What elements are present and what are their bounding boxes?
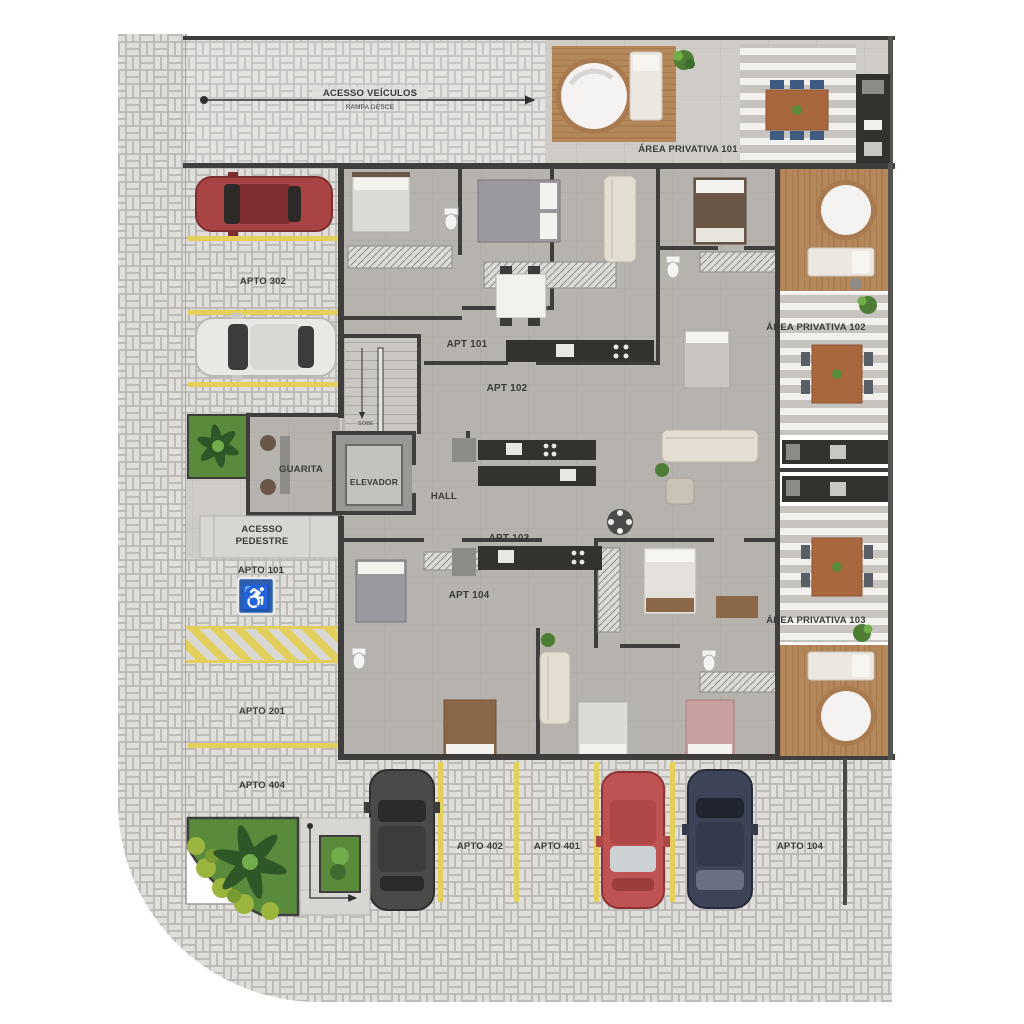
ramp-label: ACESSO VEÍCULOS <box>323 88 417 99</box>
handicap-sign: ♿ <box>238 578 274 614</box>
bed <box>352 172 410 232</box>
bbq-counter-102 <box>782 440 888 464</box>
bed <box>478 180 560 242</box>
side-table <box>850 278 862 290</box>
sofa <box>540 652 570 724</box>
apt-104-label: APT 104 <box>449 590 490 601</box>
ramp-sublabel: RAMPA DESCE <box>346 104 395 111</box>
bbq-counter-103 <box>782 476 888 502</box>
bed <box>694 178 746 244</box>
lounger-102 <box>808 248 874 276</box>
bed <box>444 700 496 756</box>
stairs-up-label: SOBE <box>358 421 374 427</box>
car-white <box>196 313 336 381</box>
pedestrian-access-label-1: ACESSO <box>241 524 282 535</box>
parking-bottom: APTO 402 APTO 401 APTO 104 <box>342 758 892 910</box>
parking-spot-104-label: APTO 104 <box>777 841 824 852</box>
apt-102-label: APT 102 <box>487 383 528 394</box>
sofa <box>604 176 636 262</box>
entry-zone: GUARITA ACESSO PEDESTRE <box>186 413 342 558</box>
dining-table-103 <box>801 538 873 596</box>
bed <box>644 548 696 614</box>
private-area-102: ÁREA PRIVATIVA 102 <box>766 169 892 472</box>
bed <box>578 702 628 756</box>
pedestrian-access-label-2: PEDESTRE <box>236 536 289 547</box>
car-bottom-red <box>596 772 670 908</box>
private-area-101: ÁREA PRIVATIVA 101 <box>545 36 893 168</box>
guard-chair <box>260 435 276 451</box>
guard-house-label: GUARITA <box>279 464 323 475</box>
bed <box>356 560 406 622</box>
hall-label: HALL <box>431 491 457 502</box>
bbq-counter-101 <box>856 74 890 164</box>
wardrobe <box>700 252 776 272</box>
lounger-101 <box>630 52 662 120</box>
toilet <box>666 256 680 278</box>
bed <box>686 700 734 756</box>
car-red <box>196 172 332 236</box>
private-area-103-label: ÁREA PRIVATIVA 103 <box>766 615 866 626</box>
guard-chair <box>260 479 276 495</box>
planter-entry <box>188 415 248 478</box>
parking-spot-404-label: APTO 404 <box>239 780 286 791</box>
desk <box>716 596 758 618</box>
handicap-icon: ♿ <box>241 584 271 612</box>
toilet <box>702 650 716 671</box>
apt-101-label: APT 101 <box>447 339 488 350</box>
hatched-no-park-zone <box>186 628 342 660</box>
lounger-103 <box>808 652 874 680</box>
toilet <box>352 648 366 669</box>
wardrobe <box>348 246 452 268</box>
indoor-plant <box>541 633 555 647</box>
car-navy <box>682 770 758 908</box>
apt-103-label: APT 103 <box>489 533 530 544</box>
private-area-101-label: ÁREA PRIVATIVA 101 <box>638 144 738 155</box>
car-dark-gray <box>364 770 440 910</box>
parking-spot-302-label: APTO 302 <box>240 276 286 287</box>
wardrobe <box>700 672 776 692</box>
parking-spot-401-label: APTO 401 <box>534 841 581 852</box>
floor-plan-canvas: ACESSO VEÍCULOS RAMPA DESCE ÁREA PRIVATI… <box>0 0 1024 1024</box>
elevator: ELEVADOR <box>332 431 416 515</box>
staircase: SOBE <box>341 334 421 434</box>
parking-spot-101-label: APTO 101 <box>238 565 285 576</box>
elevator-label: ELEVADOR <box>350 477 398 487</box>
floor-plan-page: ACESSO VEÍCULOS RAMPA DESCE ÁREA PRIVATI… <box>0 0 1024 1024</box>
dining-table-102 <box>801 345 873 403</box>
toilet <box>444 208 458 230</box>
garden-walkway <box>300 818 370 915</box>
bed <box>684 330 730 388</box>
indoor-plant <box>655 463 669 477</box>
dining-table <box>496 266 546 326</box>
private-area-102-label: ÁREA PRIVATIVA 102 <box>766 322 866 333</box>
kitchen-counter <box>506 340 654 362</box>
round-table <box>607 509 633 535</box>
dining-table-101 <box>766 80 828 140</box>
parking-spot-402-label: APTO 402 <box>457 841 503 852</box>
parking-spot-201-label: APTO 201 <box>239 706 286 717</box>
